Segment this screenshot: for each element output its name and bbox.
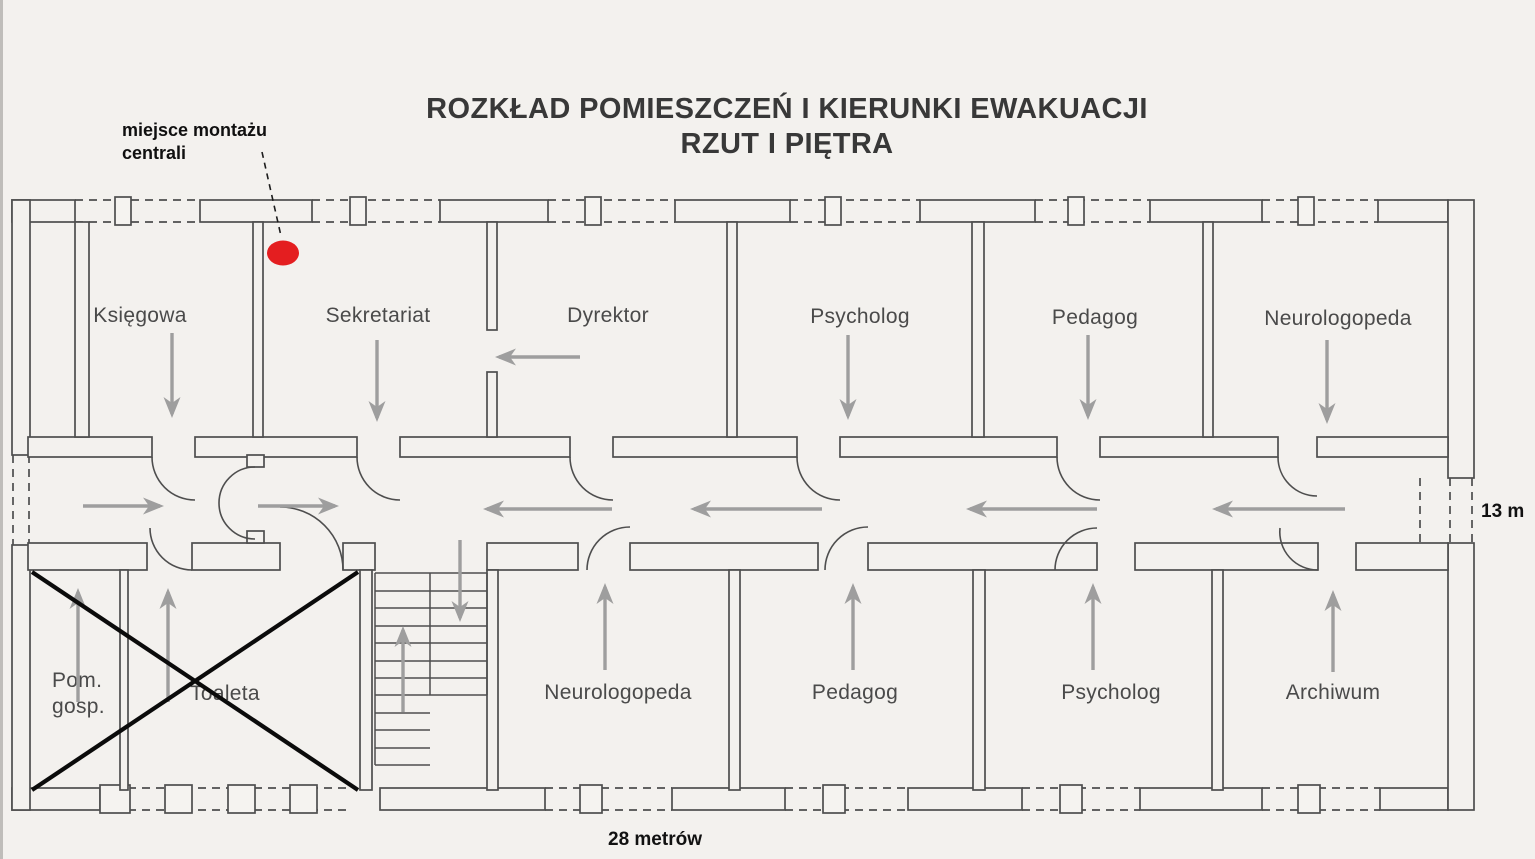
door-swings <box>150 455 1318 570</box>
room-label-ksiegowa: Księgowa <box>93 304 186 328</box>
room-label-pedagog-bottom: Pedagog <box>812 681 898 705</box>
room-label-psycholog-top: Psycholog <box>810 305 910 329</box>
staircase <box>375 573 487 765</box>
room-label-neurologopeda-top: Neurologopeda <box>1264 307 1412 331</box>
room-label-dyrektor: Dyrektor <box>567 304 649 328</box>
room-label-pedagog-top: Pedagog <box>1052 306 1138 330</box>
exterior-walls <box>12 200 1474 810</box>
title-line-1: ROZKŁAD POMIESZCZEŃ I KIERUNKI EWAKUACJI <box>426 92 1148 127</box>
depth-dimension-label: 13 m <box>1481 501 1524 523</box>
window-dashes <box>13 200 1472 810</box>
room-label-pom-gosp: Pom. gosp. <box>52 668 124 720</box>
central-unit-annotation: miejsce montażu centrali <box>122 119 307 165</box>
central-unit-marker <box>267 241 299 266</box>
double-door-bottom-post <box>247 531 264 543</box>
width-dimension-label: 28 metrów <box>608 829 702 851</box>
double-door-leaf-bottom <box>219 503 255 539</box>
scan-edge <box>0 0 3 859</box>
room-label-psycholog-bottom: Psycholog <box>1061 681 1161 705</box>
corridor-walls <box>28 437 1448 570</box>
page-title: ROZKŁAD POMIESZCZEŃ I KIERUNKI EWAKUACJI… <box>426 92 1148 162</box>
room-label-neurologopeda-bottom: Neurologopeda <box>544 681 692 705</box>
double-door-leaf-top <box>219 467 255 503</box>
double-door-top-post <box>247 455 264 467</box>
floor-plan-page: ROZKŁAD POMIESZCZEŃ I KIERUNKI EWAKUACJI… <box>0 0 1535 859</box>
room-label-toaleta: Toaleta <box>190 682 260 706</box>
room-label-archiwum: Archiwum <box>1286 681 1381 705</box>
evacuation-arrows <box>78 333 1345 712</box>
room-label-sekretariat: Sekretariat <box>326 304 431 328</box>
window-piers <box>100 197 1320 813</box>
title-line-2: RZUT I PIĘTRA <box>426 127 1148 162</box>
